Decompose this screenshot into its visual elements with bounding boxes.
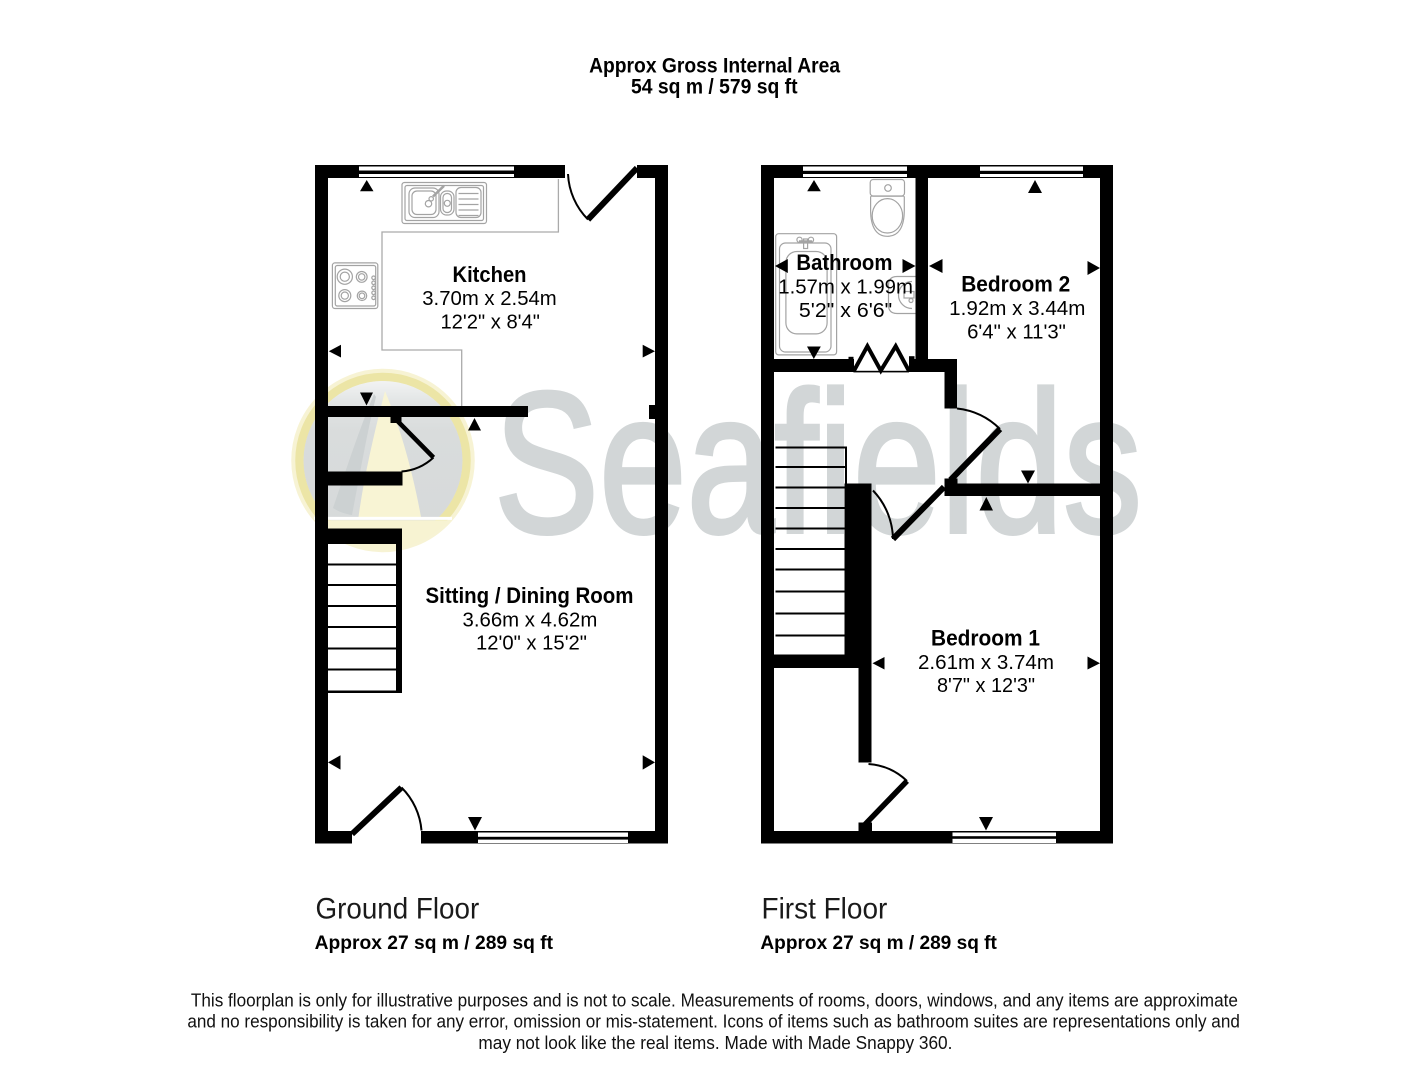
svg-text:This floorplan is only for ill: This floorplan is only for illustrative …: [191, 989, 1238, 1010]
svg-text:First Floor: First Floor: [762, 892, 888, 925]
svg-text:Bathroom: Bathroom: [796, 250, 892, 275]
svg-text:Approx Gross Internal Area: Approx Gross Internal Area: [589, 54, 840, 77]
svg-text:1.92m x 3.44m: 1.92m x 3.44m: [949, 297, 1085, 320]
svg-text:Kitchen: Kitchen: [453, 262, 527, 287]
svg-text:may not look like the real ite: may not look like the real items. Made w…: [478, 1032, 952, 1053]
svg-text:12'2" x 8'4": 12'2" x 8'4": [440, 310, 540, 333]
svg-text:Sitting / Dining Room: Sitting / Dining Room: [426, 583, 634, 608]
svg-text:8'7" x 12'3": 8'7" x 12'3": [937, 674, 1035, 697]
svg-text:6'4" x 11'3": 6'4" x 11'3": [967, 320, 1066, 343]
svg-text:Approx 27 sq m / 289 sq ft: Approx 27 sq m / 289 sq ft: [315, 932, 554, 954]
svg-text:1.57m x 1.99m: 1.57m x 1.99m: [778, 276, 913, 299]
svg-text:Ground Floor: Ground Floor: [316, 892, 480, 925]
svg-text:54 sq m / 579 sq ft: 54 sq m / 579 sq ft: [631, 75, 798, 98]
svg-text:12'0" x 15'2": 12'0" x 15'2": [476, 632, 587, 655]
svg-text:2.61m x 3.74m: 2.61m x 3.74m: [918, 651, 1054, 674]
svg-text:3.66m x 4.62m: 3.66m x 4.62m: [463, 608, 598, 631]
svg-text:Bedroom 1: Bedroom 1: [931, 625, 1040, 650]
svg-text:and no responsibility is taken: and no responsibility is taken for any e…: [187, 1011, 1240, 1032]
svg-text:5'2" x 6'6": 5'2" x 6'6": [799, 299, 892, 322]
svg-text:Approx 27 sq m / 289 sq ft: Approx 27 sq m / 289 sq ft: [760, 932, 997, 954]
svg-text:Seafields: Seafields: [494, 350, 1142, 575]
svg-text:Bedroom 2: Bedroom 2: [961, 272, 1070, 297]
svg-text:3.70m x 2.54m: 3.70m x 2.54m: [422, 287, 557, 310]
